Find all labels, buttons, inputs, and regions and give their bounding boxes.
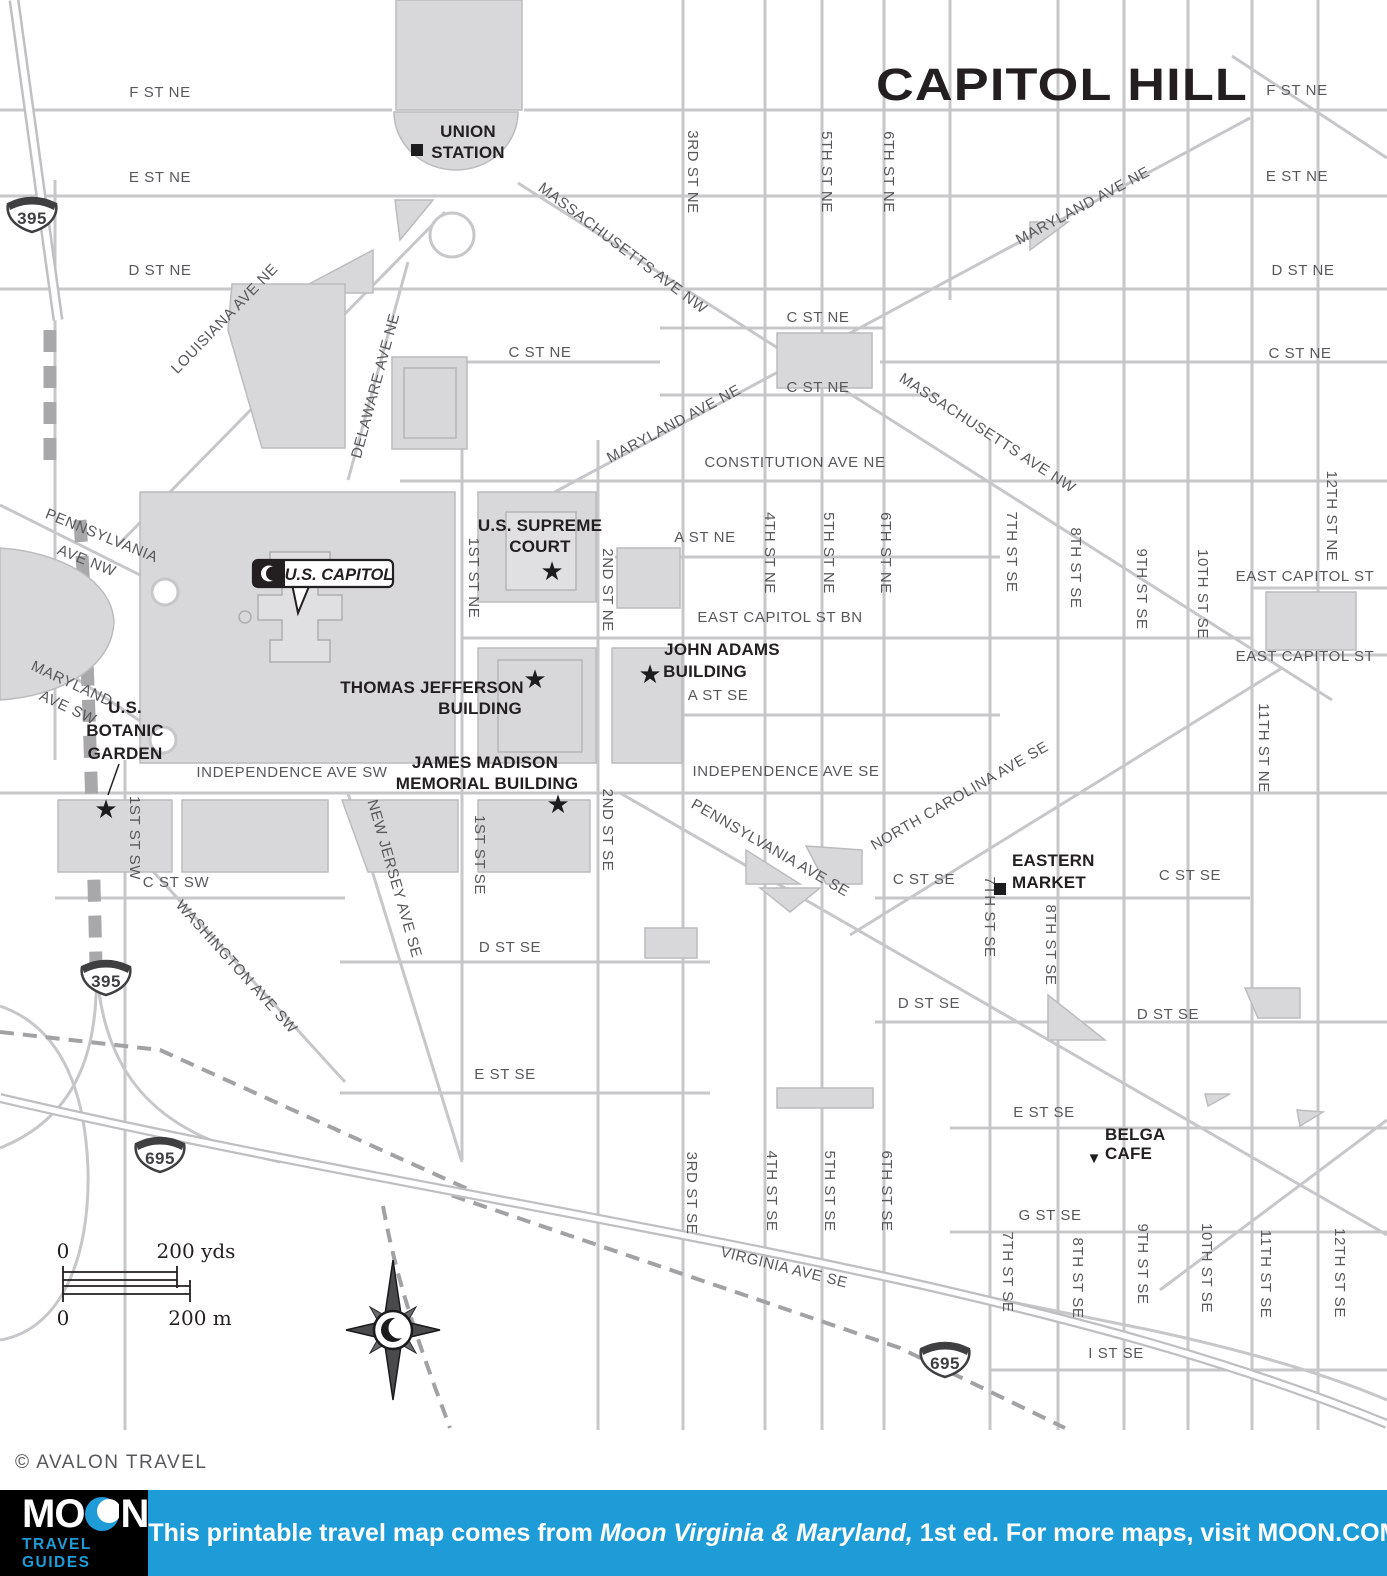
compass-rose-icon — [346, 1260, 440, 1400]
street-label: 3RD ST NE — [684, 130, 701, 213]
street-label: 11TH ST NE — [1255, 703, 1272, 793]
botanic-label: BOTANIC — [86, 721, 164, 740]
eastern-market-marker — [994, 883, 1006, 895]
eastern-market-park — [1048, 995, 1105, 1040]
scale-yds: 200 yds — [157, 1239, 236, 1263]
callout-label: U.S. CAPITOL — [285, 566, 394, 584]
footer-text-part1: This printable travel map comes from — [148, 1519, 600, 1547]
street-label: C ST NE — [786, 379, 849, 396]
street-label: G ST SE — [1018, 1207, 1081, 1224]
street-label: EAST CAPITOL ST — [1236, 568, 1375, 585]
street-label: 10TH ST SE — [1194, 549, 1211, 639]
street-label: A ST SE — [688, 687, 749, 704]
jefferson-star: ★ — [523, 664, 546, 694]
folger-park — [777, 1088, 873, 1108]
union-station-marker — [411, 144, 423, 156]
street-label: 8TH ST SE — [1042, 905, 1059, 986]
street-label: 1ST ST SE — [471, 815, 488, 895]
moon-crescent-icon — [85, 1497, 119, 1531]
street-label: F ST NE — [1266, 82, 1327, 99]
street-label: 8TH ST SE — [1067, 528, 1084, 609]
street-label: 4TH ST NE — [761, 512, 778, 594]
moon-logo-word: MON — [22, 1494, 148, 1534]
street-label: 6TH ST SE — [878, 1151, 895, 1232]
madison-star: ★ — [546, 789, 569, 819]
footer-banner: This printable travel map comes from Moo… — [148, 1490, 1387, 1576]
street-label: 12TH ST NE — [1323, 471, 1340, 562]
scale-zero: 0 — [57, 1306, 70, 1330]
adams-star: ★ — [638, 659, 661, 689]
footer-text-part2: 1st ed. For more maps, visit MOON.COM. — [913, 1519, 1387, 1547]
street-label: EAST CAPITOL ST — [1236, 648, 1375, 665]
adams-label: BUILDING — [663, 662, 747, 681]
street-label: D ST NE — [1271, 262, 1334, 279]
street-label: 5TH ST SE — [821, 1151, 838, 1232]
street-label: D ST SE — [479, 939, 541, 956]
belga-cafe-label: CAFE — [1105, 1144, 1152, 1163]
street-label: 5TH ST NE — [820, 512, 837, 594]
street-label: D ST SE — [898, 995, 960, 1012]
shield-number: 695 — [145, 1149, 175, 1168]
botanic-label: U.S. — [108, 698, 142, 717]
botanic-star: ★ — [94, 794, 117, 824]
supreme-court-label: U.S. SUPREME — [478, 516, 602, 535]
street-label: 6TH ST NE — [877, 512, 894, 594]
botanic-leader-line — [108, 764, 119, 795]
copyright: © AVALON TRAVEL — [15, 1452, 207, 1473]
street-label: C ST NE — [508, 344, 571, 361]
scale-zero: 0 — [57, 1239, 70, 1263]
street-label: C ST SW — [143, 874, 210, 891]
belga-cafe-label: BELGA — [1105, 1125, 1166, 1144]
peace-circle — [152, 579, 178, 605]
i395-shield: 395 — [82, 961, 131, 995]
map-title: CAPITOL HILL — [876, 59, 1248, 110]
street-label: 6TH ST NE — [880, 131, 897, 213]
madison-building-block — [478, 800, 590, 872]
scale-m: 200 m — [168, 1306, 232, 1330]
street-label: D ST NE — [128, 262, 191, 279]
street-label: EAST CAPITOL ST BN — [697, 609, 862, 626]
madison-label: MEMORIAL BUILDING — [396, 774, 579, 793]
street-label: NORTH CAROLINA AVE SE — [868, 738, 1052, 854]
capitol-hill-map: F ST NE E ST NE D ST NE F ST NE E ST NE … — [0, 0, 1387, 1490]
street-label: 11TH ST SE — [1257, 1230, 1274, 1319]
street-label: F ST NE — [129, 84, 190, 101]
street-label: E ST NE — [1266, 168, 1328, 185]
street-label: INDEPENDENCE AVE SW — [196, 764, 387, 781]
scale-bar-labels: 0 200 yds 0 200 m — [57, 1239, 236, 1330]
house-office-block — [342, 800, 458, 872]
street-label: C ST SE — [1159, 867, 1221, 884]
madison-label: JAMES MADISON — [412, 753, 558, 772]
street-label: 4TH ST SE — [763, 1151, 780, 1232]
street-label: C ST NE — [1268, 345, 1331, 362]
block — [617, 548, 680, 608]
seward-square-park — [760, 888, 820, 912]
street-label: 8TH ST SE — [1069, 1238, 1086, 1319]
street-label: 10TH ST SE — [1198, 1223, 1215, 1313]
street-label: E ST SE — [474, 1066, 535, 1083]
street-label: E ST NE — [129, 169, 191, 186]
footer-text: This printable travel map comes from Moo… — [148, 1519, 1387, 1548]
street-label: E ST SE — [1013, 1104, 1074, 1121]
street-label: D ST SE — [1137, 1006, 1199, 1023]
union-station-label: STATION — [431, 143, 504, 162]
supreme-court-label: COURT — [509, 537, 571, 556]
shield-number: 395 — [91, 972, 121, 991]
i695-shield: 695 — [921, 1343, 970, 1377]
street-label: 7TH ST SE — [1003, 512, 1020, 593]
union-station-building — [396, 0, 522, 110]
logo-text-n: N — [120, 1494, 148, 1534]
footer-text-italic: Moon Virginia & Maryland, — [600, 1519, 913, 1547]
adams-label: JOHN ADAMS — [664, 640, 780, 659]
street-label: 7TH ST SE — [999, 1232, 1016, 1313]
union-station-label: UNION — [440, 122, 496, 141]
belga-cafe-marker: ▼ — [1087, 1150, 1102, 1167]
street-label: A ST NE — [674, 529, 735, 546]
triangle-park — [1205, 1094, 1230, 1106]
jefferson-label: BUILDING — [438, 699, 522, 718]
supreme-court-star: ★ — [540, 556, 563, 586]
logo-subtitle: TRAVEL GUIDES — [22, 1536, 148, 1572]
street-label: INDEPENDENCE AVE SE — [692, 763, 879, 780]
map-canvas: F ST NE E ST NE D ST NE F ST NE E ST NE … — [0, 0, 1387, 1490]
street-label: 9TH ST SE — [1134, 1224, 1151, 1305]
street-label: WASHINGTON AVE SW — [172, 897, 301, 1037]
house-office-block — [182, 800, 328, 872]
footer: MON TRAVEL GUIDES This printable travel … — [0, 1490, 1387, 1576]
street-label: MARYLAND AVE NE — [1013, 163, 1153, 248]
columbus-circle — [430, 213, 474, 257]
street-label: 12TH ST SE — [1331, 1228, 1348, 1318]
street-label: C ST NE — [786, 309, 849, 326]
street-label: 9TH ST SE — [1133, 549, 1150, 630]
eastern-market-label: EASTERN — [1012, 851, 1095, 870]
columbus-circle-park — [395, 200, 433, 240]
street-label: 1ST ST NE — [465, 538, 482, 619]
street-label: 1ST ST SW — [126, 796, 143, 880]
moon-logo: MON TRAVEL GUIDES — [0, 1490, 148, 1576]
street-label: MASSACHUSETTS AVE NW — [896, 370, 1079, 497]
park-block — [645, 928, 697, 958]
moon-crescent-icon-mask — [266, 567, 280, 581]
street-label: CONSTITUTION AVE NE — [704, 454, 885, 471]
shield-number: 695 — [930, 1354, 960, 1373]
street-label: 2ND ST NE — [599, 548, 616, 631]
lincoln-park — [1266, 592, 1356, 650]
logo-text-mo: MO — [22, 1494, 84, 1534]
street-label: C ST SE — [893, 871, 955, 888]
i695-shield: 695 — [136, 1138, 185, 1172]
street-label: 3RD ST SE — [683, 1152, 700, 1235]
street-label: 2ND ST SE — [599, 789, 616, 872]
shield-number: 395 — [17, 209, 47, 228]
street-label: I ST SE — [1088, 1345, 1144, 1362]
jefferson-label: THOMAS JEFFERSON — [340, 678, 524, 697]
botanic-label: GARDEN — [88, 744, 163, 763]
eastern-market-label: MARKET — [1012, 873, 1086, 892]
street-label: 5TH ST NE — [818, 131, 835, 213]
